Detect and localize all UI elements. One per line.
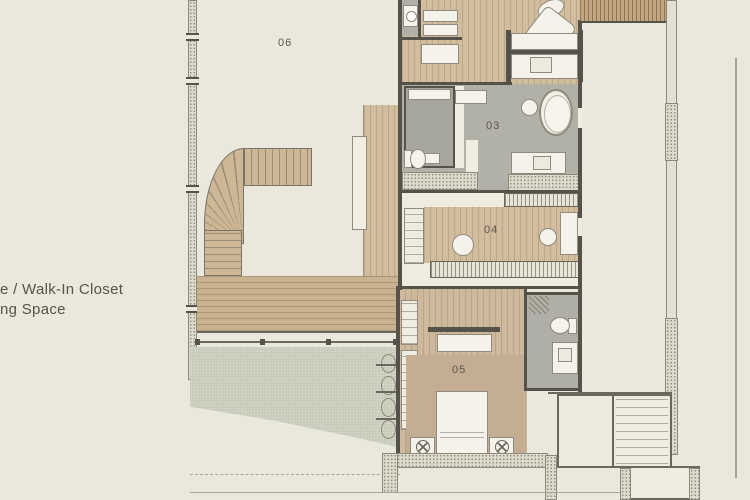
- toilet-icon: [410, 149, 426, 169]
- wall-joint: [186, 185, 199, 193]
- shaft-wall: [689, 468, 700, 500]
- deck-horizontal: [197, 276, 398, 333]
- sink-icon: [533, 156, 551, 170]
- room-label-04: 04: [484, 224, 498, 236]
- railing-post: [260, 339, 265, 345]
- deck-vertical: [363, 105, 399, 280]
- wall: [524, 289, 527, 391]
- closet-stool-icon: [539, 228, 557, 246]
- exterior-wall-bottom: [382, 453, 548, 468]
- exterior-wall-corner: [382, 453, 398, 493]
- legend-line-1: e / Walk-In Closet: [0, 281, 123, 298]
- wall-joint: [186, 33, 199, 41]
- toilet-icon: [550, 317, 570, 334]
- hedge-symbol: [381, 420, 396, 439]
- wardrobe-top: [504, 193, 582, 207]
- vanity-counter: [511, 33, 578, 50]
- wall: [402, 37, 462, 40]
- room-label-06: 06: [278, 37, 292, 49]
- lamp-icon: [495, 440, 509, 454]
- shower-bench: [408, 89, 451, 100]
- wall: [402, 82, 512, 85]
- wall-joint: [186, 77, 199, 85]
- room-label-05: 05: [452, 364, 466, 376]
- shaft-wall: [620, 468, 631, 500]
- wardrobe-bottom: [430, 261, 582, 278]
- wall-stipple-vertical: [545, 455, 557, 500]
- wall: [527, 292, 582, 295]
- closet-stool-icon: [452, 234, 474, 256]
- floor-plan: 06 03: [0, 0, 750, 500]
- railing-post: [195, 339, 200, 345]
- closet-04-floor: [424, 207, 582, 263]
- bath-shelf: [455, 90, 487, 104]
- site-boundary-bottom: [190, 492, 620, 493]
- stair-shaft: [620, 466, 700, 500]
- tv-wall: [428, 327, 500, 332]
- wall-stipple-band: [402, 172, 478, 190]
- bed-icon: [436, 391, 488, 455]
- slat-deck: [580, 0, 666, 23]
- hedge-symbol: [381, 398, 396, 417]
- building-wall-left: [398, 0, 402, 290]
- site-boundary-right: [735, 58, 737, 478]
- room-divider: [612, 394, 614, 468]
- sink-icon: [530, 57, 552, 73]
- wall: [418, 0, 421, 38]
- bathtub-basin: [544, 95, 571, 133]
- bedroom-closet: [401, 300, 418, 345]
- wall: [527, 388, 582, 391]
- bed-pillow-line: [440, 437, 484, 438]
- bath-stool-icon: [521, 99, 538, 116]
- building-wall-left-lower: [396, 289, 400, 455]
- legend-line-2: ng Space: [0, 301, 66, 318]
- deck-recess-planter: [352, 136, 367, 230]
- cabinet: [421, 44, 459, 64]
- boundary-dashed-line: [190, 474, 400, 475]
- bathtub-icon: [539, 89, 573, 136]
- terrace-wall-stipple: [665, 103, 678, 161]
- bed-blanket-line: [440, 432, 484, 433]
- door-opening: [578, 108, 582, 128]
- railing-post: [326, 339, 331, 345]
- building-wall-right: [578, 20, 582, 455]
- door-opening: [578, 218, 582, 236]
- railing: [197, 341, 398, 343]
- stair-flight-top: [244, 148, 312, 186]
- green-roof-area: [190, 347, 400, 452]
- sink-icon: [558, 348, 572, 362]
- tv-console: [437, 334, 492, 352]
- door-swing-hatch: [529, 296, 549, 314]
- shelf-marks: [616, 398, 668, 464]
- toilet-bowl-icon: [406, 11, 417, 22]
- counter: [423, 10, 458, 22]
- stair-flight-bottom: [204, 230, 242, 276]
- shelf-column: [404, 208, 424, 264]
- room-label-03: 03: [486, 120, 500, 132]
- lamp-icon: [416, 440, 430, 454]
- closet-bench: [560, 212, 578, 255]
- counter: [423, 24, 458, 36]
